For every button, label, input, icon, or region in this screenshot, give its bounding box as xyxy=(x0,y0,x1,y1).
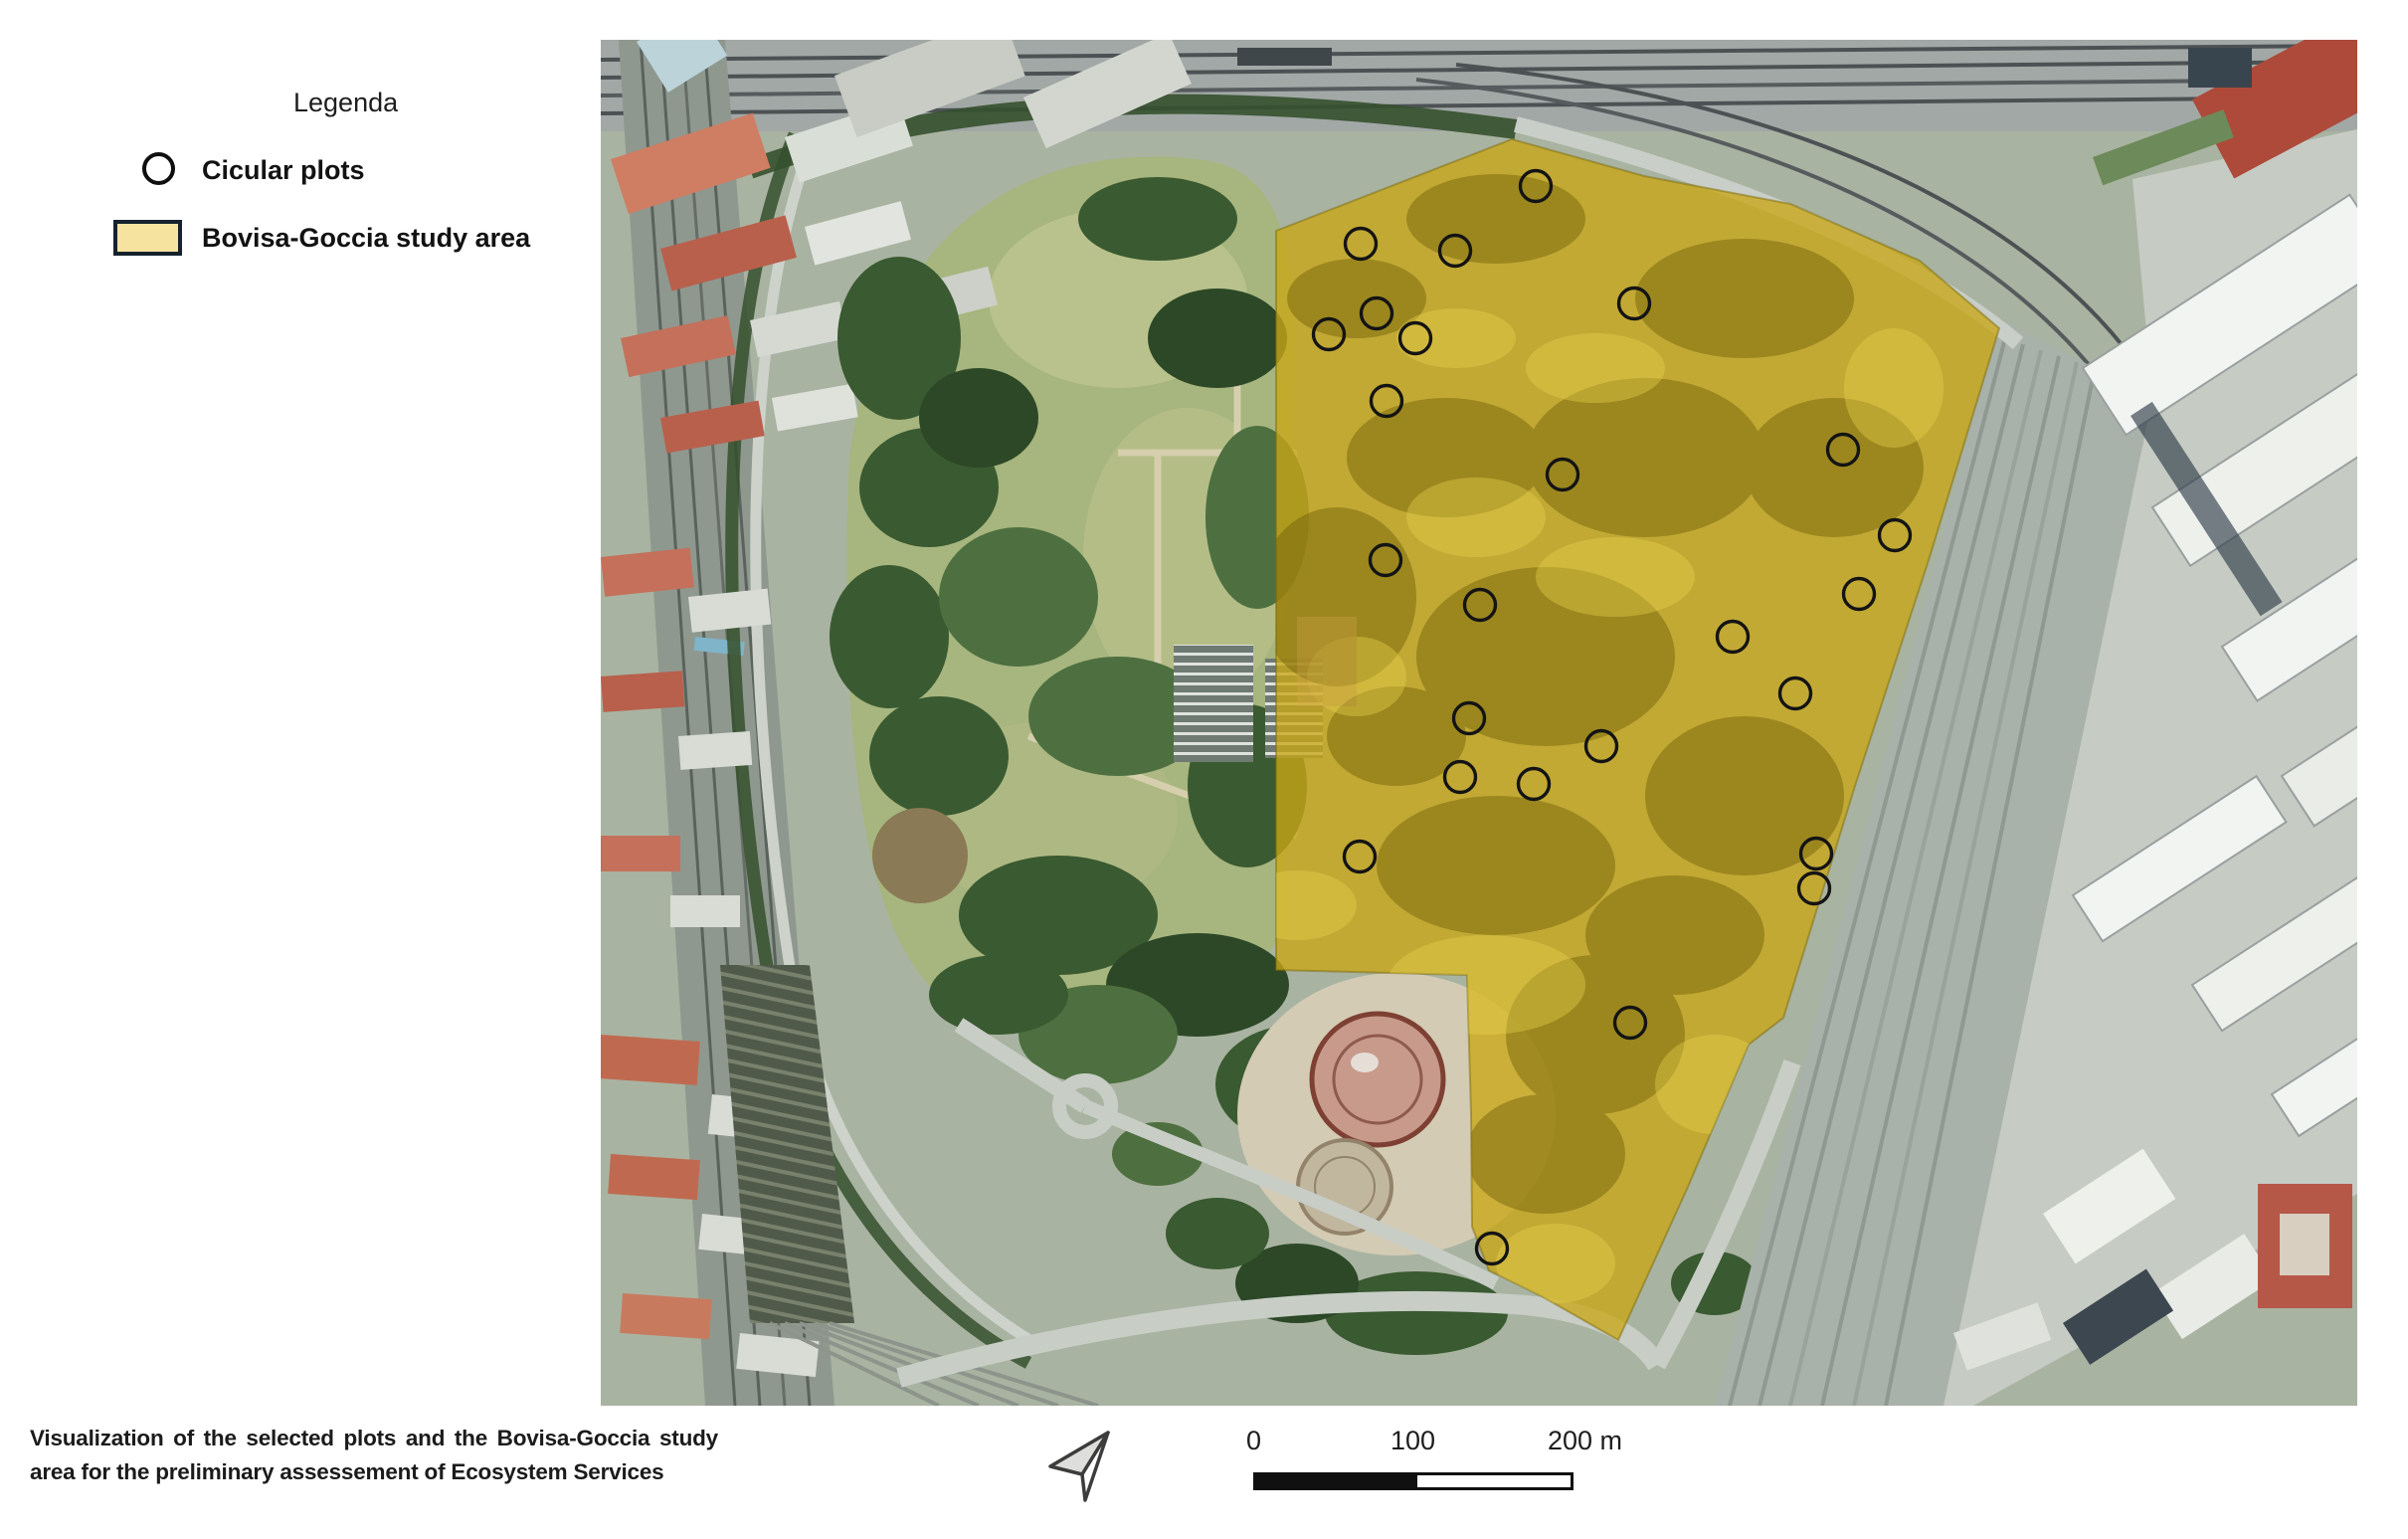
legend-item-circular-plots: Cicular plots xyxy=(202,155,365,186)
scale-label-200: 200 m xyxy=(1548,1426,1622,1456)
scale-bar-filled-segment xyxy=(1256,1475,1417,1487)
figure-caption: Visualization of the selected plots and … xyxy=(30,1422,718,1489)
study-area-swatch-icon xyxy=(113,220,182,256)
figure-page: Legenda Cicular plots Bovisa-Goccia stud… xyxy=(0,0,2408,1539)
scale-label-0: 0 xyxy=(1246,1426,1261,1456)
circular-plot-icon xyxy=(142,152,175,185)
north-arrow-icon xyxy=(1042,1427,1118,1504)
scale-bar-track xyxy=(1253,1472,1574,1490)
legend-title: Legenda xyxy=(293,88,398,118)
legend-item-study-area: Bovisa-Goccia study area xyxy=(202,223,530,254)
aerial-map xyxy=(601,40,2357,1406)
aerial-backdrop xyxy=(601,40,2357,1406)
scale-label-100: 100 xyxy=(1390,1426,1435,1456)
